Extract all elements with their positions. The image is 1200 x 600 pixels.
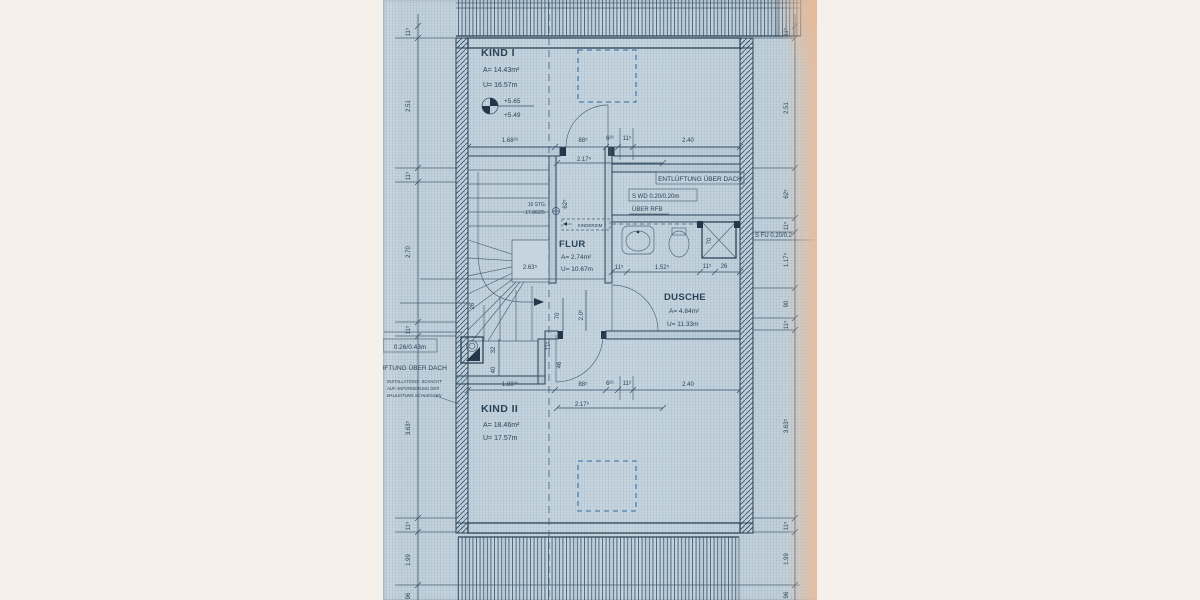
dim-top-sub: 2.17⁵ [577,156,592,163]
dimension-row-bath: 11⁵ 1.52⁵ 11⁵ 26 [609,263,743,275]
entlueftung-label: ENTLÜFTUNG ÜBER DACH [658,175,742,183]
dim-left-1: 2.51 [406,100,412,112]
dim-left-7: 1.99 [406,554,412,566]
lueftung-label: LÜFTUNG ÜBER DACH [376,364,447,372]
level-lower: +5.49 [504,112,521,119]
dim-stair-length: 2.63⁵ [523,264,538,271]
room-flur-labels: KINDERZIM FLUR A= 2.74m² U= 10.67m [559,219,610,273]
ueber-rfb-label: ÜBER RFB [632,206,662,213]
floor-plan-drawing: 70 [0,0,1200,600]
dim-left-8: 96 [406,592,412,599]
dim-flur-70: 70 [555,312,561,319]
dim-shaft-width: 70 [707,237,713,244]
room-area-flur: A= 2.74m² [561,254,592,261]
dim-left-3: 2.70 [406,246,412,258]
dim-bath-1: 1.52⁵ [655,264,670,271]
swd-label: S WD 0.20/0.20m [632,194,679,200]
dim-niche-40: 40 [491,366,497,373]
dim-bottom-sub: 2.17⁵ [575,401,590,408]
room-area-kind1: A= 14.43m² [483,67,520,74]
dim-flur-205: 2.0⁵ [578,309,585,320]
room-name-kind1: KIND I [481,47,515,59]
dim-left-5: 3.63⁵ [405,420,412,435]
room-name-flur: FLUR [559,239,586,250]
dim-left-0: 11⁵ [405,27,412,36]
photo-edge-warm-tint [786,0,817,600]
roof-hatch-top [456,0,801,36]
dim-top-4: 2.40 [682,138,694,144]
shaft-size-label: 0.26/0.43m [394,344,427,351]
stair-direction-arrow [534,298,544,306]
door-arc-dusche [612,285,658,331]
dim-bottom-2: 6²⁶ [606,380,614,387]
dim-left-6: 11⁵ [405,521,412,530]
staircase: 16 STG. 17.86/25 2.63⁵ [468,170,560,341]
room-name-kind2: KIND II [481,403,518,415]
dim-bottom-4: 2.40 [682,382,694,388]
dimension-row-top: 1.68²⁶ 88⁵ 6²⁶ 11⁵ 2.40 2.17⁵ [465,128,743,166]
room-area-kind2: A= 18.46m² [483,422,520,429]
installation-shaft: 70 [697,221,740,258]
room-name-dusche: DUSCHE [664,292,706,303]
bath-fixtures [612,224,698,257]
dim-flur-115: 11⁵ [545,341,552,350]
note-line2: AUF ANFORDERUNG DER [386,386,439,391]
washbasin [622,226,654,254]
exterior-walls [456,38,753,533]
dim-left-4: 11⁵ [405,325,412,334]
stair-rise-run-label: 17.86/25 [525,210,545,216]
note-line1: INSTALLATIONS- SCHACHT [387,379,442,384]
roof-hatch-bottom [458,537,739,600]
dim-top-0: 1.68²⁶ [502,137,519,144]
room-dusche-labels: DUSCHE A= 4.84m² U= 11.33m [664,292,706,328]
dim-top-1: 88⁵ [578,137,588,144]
dim-flur-62: 62⁵ [562,199,569,209]
skylight-kind2 [578,461,636,511]
flur-tag-label: KINDERZIM [578,223,603,228]
dimension-chain-left: 11⁵ 2.51 11⁵ 2.70 11⁵ 3.63⁵ 11⁵ 1.99 96 [395,14,456,600]
room-perimeter-dusche: U= 11.33m [667,321,699,328]
photo-of-blueprint: 70 [0,0,1200,600]
stair-count-label: 16 STG. [528,202,547,208]
photo-corner-warm-tint [770,0,817,70]
room-area-dusche: A= 4.84m² [669,308,700,315]
dim-bottom-3: 11⁵ [623,380,632,387]
dim-bath-2: 11⁵ [703,263,712,270]
dim-bath-3: 26 [721,264,728,270]
skylight-kind1 [578,50,636,102]
room-kind1-labels: KIND I A= 14.43m² U= 16.57m +5.65 +5.49 [481,47,534,119]
level-upper: +5.65 [504,98,521,105]
room-perimeter-flur: U= 10.67m [561,266,593,273]
dim-left-2: 11⁵ [405,171,412,180]
note-line3: BAULEITUNG SCHLIESSEN [387,393,442,398]
dim-bottom-1: 88⁵ [578,381,588,388]
dim-niche-32: 32 [491,346,497,353]
dim-bath-0: 11⁵ [615,264,624,271]
left-annotations: 0.26/0.43m LÜFTUNG ÜBER DACH INSTALLATIO… [376,332,462,404]
elevation-marker: +5.65 +5.49 [482,98,534,119]
room-kind2-labels: KIND II A= 18.46m² U= 17.57m [481,403,520,442]
dim-top-3: 11⁵ [623,135,632,142]
dim-bottom-0: 1.88²⁶ [502,381,519,388]
dim-flur-46: 46 [557,361,563,368]
dim-top-2: 6²⁶ [606,135,614,142]
dim-stair-26: 26 [470,302,476,309]
room-perimeter-kind2: U= 17.57m [483,435,518,442]
door-arc-kind2 [556,335,603,382]
room-perimeter-kind1: U= 16.57m [483,82,518,89]
